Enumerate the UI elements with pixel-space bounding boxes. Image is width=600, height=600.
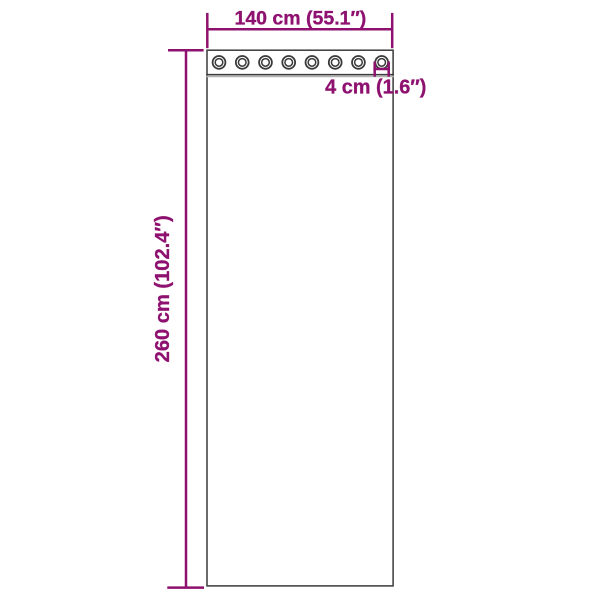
svg-text:140 cm (55.1″): 140 cm (55.1″) [234, 7, 366, 29]
svg-text:4 cm (1.6″): 4 cm (1.6″) [325, 77, 426, 99]
svg-text:260 cm (102.4″): 260 cm (102.4″) [152, 215, 174, 362]
